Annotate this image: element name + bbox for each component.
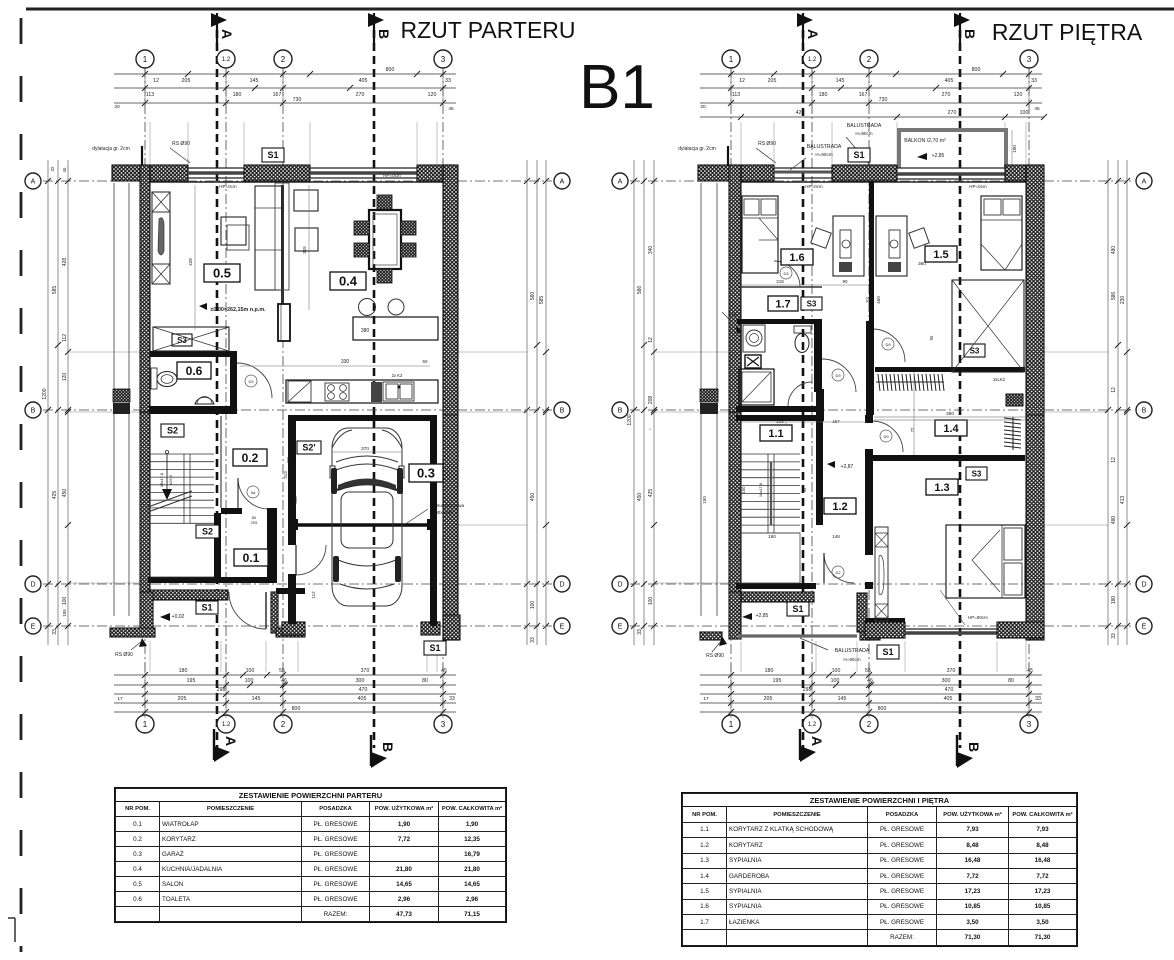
svg-text:100: 100: [831, 678, 840, 684]
svg-text:S1: S1: [882, 647, 893, 657]
svg-text:RS Ø90: RS Ø90: [172, 141, 190, 147]
svg-text:205: 205: [251, 520, 258, 525]
svg-text:HP=0cm: HP=0cm: [383, 173, 401, 178]
svg-text:BALUSTRADA: BALUSTRADA: [835, 648, 870, 654]
svg-text:145: 145: [838, 696, 847, 702]
svg-text:1: 1: [729, 720, 734, 729]
svg-text:180: 180: [765, 668, 774, 674]
svg-text:2: 2: [281, 55, 286, 64]
svg-text:S3: S3: [865, 297, 870, 303]
svg-text:205: 205: [768, 78, 777, 84]
svg-text:730: 730: [293, 97, 302, 103]
svg-text:90: 90: [929, 335, 934, 340]
svg-text:S1: S1: [792, 604, 803, 614]
svg-text:S2: S2: [202, 527, 213, 537]
svg-text:470: 470: [945, 687, 954, 693]
svg-text:D: D: [1141, 582, 1146, 589]
svg-text:2x K2: 2x K2: [392, 373, 403, 378]
svg-text:x26,4: x26,4: [168, 474, 173, 485]
svg-text:370: 370: [361, 668, 370, 674]
svg-text:E: E: [31, 624, 36, 631]
svg-text:428: 428: [188, 258, 193, 266]
svg-text:46: 46: [281, 678, 287, 684]
svg-text:428: 428: [62, 258, 68, 267]
svg-text:3: 3: [441, 720, 446, 729]
svg-text:55: 55: [865, 668, 871, 674]
svg-text:145: 145: [252, 696, 261, 702]
svg-text:420: 420: [796, 110, 805, 116]
svg-text:S3: S3: [807, 299, 817, 308]
svg-text:300: 300: [942, 678, 951, 684]
svg-text:B: B: [618, 408, 623, 415]
svg-text:1.7: 1.7: [775, 298, 790, 310]
svg-text:S1: S1: [853, 150, 864, 160]
svg-text:H=90cm: H=90cm: [843, 657, 860, 662]
svg-text:585: 585: [52, 286, 58, 295]
svg-text:480: 480: [1111, 516, 1117, 525]
svg-text:H=90cm: H=90cm: [815, 152, 832, 157]
svg-text:BALUSTRADA: BALUSTRADA: [847, 123, 882, 129]
svg-text:150: 150: [702, 496, 707, 504]
svg-text:2: 2: [867, 55, 872, 64]
svg-text:480: 480: [1111, 246, 1117, 255]
svg-text:3: 3: [441, 55, 446, 64]
svg-text:800: 800: [972, 67, 981, 73]
svg-text:3: 3: [1027, 55, 1032, 64]
svg-text:33: 33: [1111, 633, 1117, 639]
svg-text:12: 12: [153, 78, 159, 84]
svg-text:340: 340: [648, 246, 654, 255]
svg-text:18x17,8: 18x17,8: [758, 482, 763, 497]
svg-text:80: 80: [1008, 678, 1014, 684]
svg-text:33: 33: [530, 637, 536, 643]
svg-text:315: 315: [302, 246, 307, 254]
svg-text:380: 380: [946, 411, 954, 417]
svg-text:148: 148: [832, 534, 840, 539]
svg-text:100: 100: [1020, 110, 1029, 116]
svg-text:D9: D9: [835, 373, 841, 378]
svg-text:145: 145: [836, 78, 845, 84]
svg-text:0.2: 0.2: [242, 451, 259, 465]
svg-text:1.6: 1.6: [789, 252, 804, 264]
svg-text:A: A: [805, 29, 821, 39]
svg-text:113: 113: [732, 92, 740, 98]
svg-text:RZUT PIĘTRA: RZUT PIĘTRA: [992, 19, 1143, 45]
svg-text:2xLK2: 2xLK2: [993, 377, 1006, 382]
svg-text:370: 370: [947, 668, 956, 674]
svg-text:405: 405: [359, 78, 368, 84]
svg-text:1.2: 1.2: [808, 722, 817, 728]
svg-text:HP=0cm: HP=0cm: [219, 184, 237, 189]
svg-text:413: 413: [1120, 496, 1126, 505]
svg-text:145: 145: [250, 78, 259, 84]
svg-text:586: 586: [637, 286, 643, 295]
svg-text:0.6: 0.6: [186, 364, 203, 378]
svg-text:D3: D3: [783, 271, 789, 276]
svg-text:113: 113: [146, 92, 154, 98]
svg-text:425: 425: [648, 489, 654, 498]
svg-text:180: 180: [819, 92, 828, 98]
svg-text:D9: D9: [885, 342, 891, 347]
svg-text:167: 167: [832, 419, 840, 424]
svg-text:45: 45: [1027, 668, 1033, 674]
svg-text:17: 17: [703, 696, 709, 702]
svg-text:167: 167: [273, 92, 282, 98]
svg-text:180: 180: [179, 668, 188, 674]
svg-text:33: 33: [445, 78, 451, 84]
svg-text:D: D: [30, 582, 35, 589]
svg-text:D: D: [617, 582, 622, 589]
svg-text:515: 515: [293, 496, 298, 504]
svg-text:HP=80cm: HP=80cm: [968, 615, 988, 620]
svg-text:450: 450: [530, 493, 536, 502]
svg-text:±0.00=262,15m n.p.m.: ±0.00=262,15m n.p.m.: [210, 307, 266, 313]
svg-text:RS Ø90: RS Ø90: [115, 652, 133, 658]
svg-text:205: 205: [182, 78, 191, 84]
svg-text:RS Ø90: RS Ø90: [706, 653, 724, 659]
svg-text:405: 405: [358, 696, 367, 702]
svg-text:12: 12: [1111, 457, 1117, 463]
svg-text:1: 1: [143, 720, 148, 729]
svg-text:18x17,8: 18x17,8: [159, 472, 164, 487]
svg-text:D: D: [559, 582, 564, 589]
svg-text:A: A: [560, 179, 565, 186]
svg-text:1.4: 1.4: [943, 423, 959, 435]
svg-text:1200: 1200: [42, 388, 48, 399]
svg-text:D9: D9: [883, 434, 889, 439]
svg-text:195: 195: [187, 678, 196, 684]
svg-text:360: 360: [918, 261, 926, 267]
svg-text:S1: S1: [267, 150, 278, 160]
svg-text:B1: B1: [579, 53, 655, 122]
svg-text:230: 230: [1120, 296, 1126, 305]
svg-text:218: 218: [776, 279, 784, 284]
svg-text:1: 1: [729, 55, 734, 64]
svg-text:50: 50: [422, 359, 428, 364]
svg-text:12: 12: [739, 78, 745, 84]
svg-text:100: 100: [62, 597, 68, 606]
svg-text:1: 1: [143, 55, 148, 64]
svg-text:32: 32: [50, 166, 55, 172]
svg-text:A: A: [809, 736, 825, 746]
svg-text:208: 208: [648, 396, 654, 405]
svg-text:800: 800: [292, 706, 301, 712]
svg-text:A: A: [1142, 179, 1147, 186]
svg-text:1.1: 1.1: [768, 428, 783, 440]
svg-text:20: 20: [700, 104, 706, 110]
svg-text:BALKON /2,70 m²: BALKON /2,70 m²: [904, 138, 946, 144]
svg-text:1.2: 1.2: [222, 57, 231, 63]
svg-text:300: 300: [356, 678, 365, 684]
svg-text:180: 180: [233, 92, 242, 98]
svg-text:B: B: [380, 742, 396, 752]
svg-text:+2,87: +2,87: [841, 464, 854, 470]
svg-text:H=90cm: H=90cm: [855, 131, 872, 136]
svg-text:270: 270: [942, 92, 951, 98]
svg-text:A: A: [618, 179, 623, 186]
svg-text:425: 425: [52, 491, 58, 500]
svg-text:180: 180: [1111, 596, 1117, 605]
svg-text:HP=0cm: HP=0cm: [805, 184, 823, 189]
svg-text:9x: 9x: [802, 488, 807, 492]
svg-text:730: 730: [879, 97, 888, 103]
svg-text:BALUSTRADA: BALUSTRADA: [807, 144, 842, 150]
svg-text:120: 120: [1014, 92, 1023, 98]
svg-text:45: 45: [62, 167, 67, 173]
svg-text:dylatacja gr. 2cm: dylatacja gr. 2cm: [92, 146, 130, 152]
svg-text:S2: S2: [167, 426, 178, 436]
svg-text:D3: D3: [248, 379, 254, 384]
svg-text:100: 100: [246, 668, 255, 674]
svg-text:33: 33: [52, 629, 58, 635]
svg-text:205: 205: [178, 696, 187, 702]
svg-text:298: 298: [803, 687, 812, 693]
svg-text:E: E: [560, 624, 565, 631]
svg-text:17: 17: [117, 696, 123, 702]
svg-text:+0.02: +0.02: [172, 614, 185, 620]
svg-text:195: 195: [773, 678, 782, 684]
svg-text:33: 33: [637, 629, 643, 635]
svg-text:B: B: [1142, 408, 1147, 415]
svg-text:33: 33: [449, 696, 455, 702]
svg-text:100: 100: [832, 668, 841, 674]
svg-text:S3: S3: [972, 469, 982, 478]
svg-text:405: 405: [944, 696, 953, 702]
svg-text:3: 3: [1027, 720, 1032, 729]
svg-text:270: 270: [948, 110, 957, 116]
svg-text:586: 586: [1111, 292, 1117, 301]
svg-text:E: E: [1142, 624, 1147, 631]
svg-text:120: 120: [428, 92, 437, 98]
svg-text:160: 160: [768, 534, 776, 539]
svg-text:150: 150: [741, 486, 746, 494]
svg-text:298: 298: [217, 687, 226, 693]
svg-text:0.5: 0.5: [213, 266, 231, 281]
svg-text:100: 100: [1012, 145, 1017, 153]
svg-text:45: 45: [441, 668, 447, 674]
svg-text:+2,85: +2,85: [932, 153, 945, 159]
svg-text:460: 460: [876, 296, 881, 304]
svg-text:80: 80: [422, 678, 428, 684]
svg-text:E: E: [618, 624, 623, 631]
svg-text:380: 380: [361, 328, 370, 334]
svg-text:45: 45: [1034, 106, 1040, 112]
svg-text:RZUT PARTERU: RZUT PARTERU: [400, 17, 575, 43]
svg-text:0.1: 0.1: [243, 551, 260, 565]
svg-text:S1: S1: [201, 603, 212, 613]
svg-text:800: 800: [386, 67, 395, 73]
svg-text:20: 20: [114, 104, 120, 110]
svg-text:B: B: [31, 408, 36, 415]
svg-text:55: 55: [279, 668, 285, 674]
svg-text:330: 330: [341, 359, 350, 365]
svg-text:450: 450: [637, 493, 643, 502]
svg-text:370: 370: [361, 446, 369, 452]
svg-text:100: 100: [530, 601, 536, 610]
svg-text:90: 90: [842, 279, 848, 284]
svg-text:0.4: 0.4: [339, 274, 358, 289]
svg-text:450: 450: [62, 489, 68, 498]
svg-text:167: 167: [859, 92, 868, 98]
svg-text:B: B: [560, 408, 565, 415]
svg-text:B: B: [376, 29, 392, 39]
svg-text:B: B: [966, 742, 982, 752]
svg-text:800: 800: [878, 706, 887, 712]
svg-text:585: 585: [539, 296, 545, 305]
svg-text:+2,85: +2,85: [756, 613, 769, 619]
svg-text:2: 2: [281, 720, 286, 729]
svg-text:205: 205: [764, 696, 773, 702]
svg-text:46: 46: [867, 678, 873, 684]
svg-text:470: 470: [359, 687, 368, 693]
svg-text:S2': S2': [302, 443, 315, 453]
svg-text:33: 33: [1031, 78, 1037, 84]
svg-text:12: 12: [648, 337, 654, 343]
svg-text:2: 2: [867, 720, 872, 729]
svg-text:405: 405: [945, 78, 954, 84]
svg-text:HP=0cm: HP=0cm: [969, 184, 987, 189]
svg-text:0.3: 0.3: [417, 466, 435, 481]
svg-text:218: 218: [776, 419, 784, 424]
svg-text:33: 33: [1035, 696, 1041, 702]
svg-text:270: 270: [356, 92, 365, 98]
svg-text:RS Ø90: RS Ø90: [758, 141, 776, 147]
svg-text:100: 100: [648, 597, 654, 606]
svg-text:A: A: [223, 736, 239, 746]
svg-text:1.5: 1.5: [933, 249, 948, 261]
svg-text:LK2: LK2: [729, 312, 737, 317]
svg-text:12: 12: [1111, 387, 1117, 393]
svg-text:105: 105: [62, 609, 67, 617]
svg-text:A: A: [219, 29, 235, 39]
svg-text:1.2: 1.2: [832, 501, 847, 513]
svg-text:120: 120: [62, 373, 68, 382]
svg-text:1.3: 1.3: [934, 482, 949, 494]
svg-text:112: 112: [62, 334, 68, 342]
svg-text:313: 313: [283, 471, 288, 479]
svg-text:S2: S2: [286, 457, 291, 463]
svg-text:S1: S1: [429, 643, 440, 653]
svg-text:A: A: [31, 179, 36, 186]
svg-text:5a: 5a: [251, 490, 256, 495]
svg-text:112: 112: [311, 591, 316, 599]
svg-text:560: 560: [530, 292, 536, 301]
svg-text:1200: 1200: [627, 414, 633, 425]
svg-text:dylatacja gr. 2cm: dylatacja gr. 2cm: [678, 146, 716, 152]
svg-text:B: B: [962, 29, 978, 39]
svg-text:1.2: 1.2: [222, 722, 231, 728]
svg-text:D2: D2: [835, 570, 841, 575]
svg-text:45: 45: [448, 106, 454, 112]
svg-text:1.2: 1.2: [808, 57, 817, 63]
svg-text:100: 100: [245, 678, 254, 684]
